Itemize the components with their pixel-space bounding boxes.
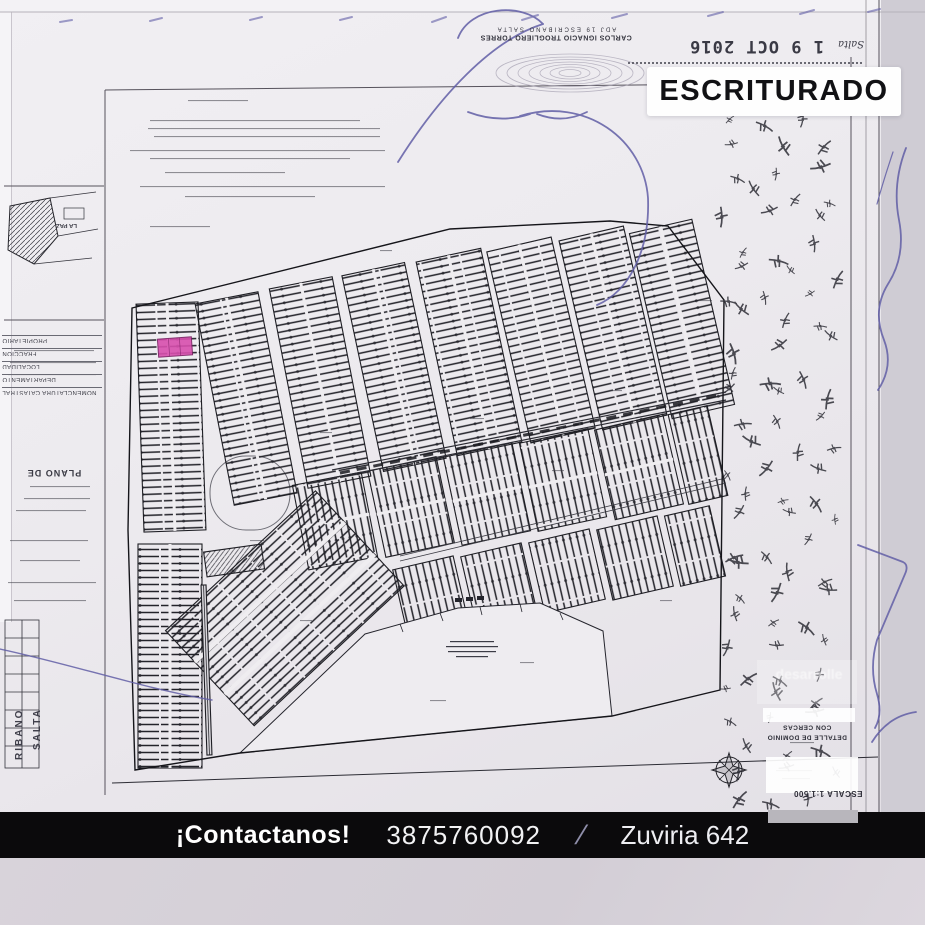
minimap-label: LA PAZ (56, 222, 77, 228)
notary-name-stamp: CARLOS IGNACIO TROGLIERO TORRES ADJ 19 E… (468, 24, 644, 40)
field-label: LOCALIDAD (2, 361, 102, 369)
street-address: Zuviria 642 (621, 820, 750, 851)
title-block-fields: NOMENCLATURA CATASTRAL DEPARTAMENTO LOCA… (2, 330, 102, 400)
status-badge-label: ESCRITURADO (659, 75, 888, 108)
field-label: PROPIETARIO (2, 335, 102, 343)
highlighted-lot (157, 337, 192, 357)
notary-title: ADJ 19 ESCRIBANO SALTA (468, 24, 644, 32)
date-stamp-date: 1 9 OCT 2016 (689, 36, 824, 56)
real-estate-flyer: CARLOS IGNACIO TROGLIERO TORRES ADJ 19 E… (0, 0, 925, 925)
detail-title: DETALLE DE DOMINIO (762, 732, 852, 742)
legend-white-box (763, 708, 855, 722)
date-stamp-place: Salta (838, 38, 864, 49)
field-label: FRACCION (2, 348, 102, 356)
separator-slash: / (575, 820, 587, 851)
contact-cta: ¡Contactanos! (176, 821, 351, 850)
notary-name: CARLOS IGNACIO TROGLIERO TORRES (468, 32, 644, 41)
detail-label: DETALLE DE DOMINIO CON CERCAS (762, 722, 852, 742)
compass-rose-icon (712, 753, 746, 787)
phone-number: 3875760092 (386, 820, 541, 851)
legend-white-box (766, 757, 858, 793)
detail-subtitle: CON CERCAS (762, 722, 852, 732)
field-label: NOMENCLATURA CATASTRAL (2, 387, 102, 395)
watermark-word: desarrolle (754, 666, 864, 682)
location-minimap (4, 186, 104, 320)
plan-title: PLANO DE (14, 468, 94, 478)
date-stamp-dotted-line (628, 62, 862, 64)
field-label: DEPARTAMENTO (2, 374, 102, 382)
date-stamp: Salta 1 9 OCT 2016 (632, 36, 864, 56)
notary-seal-guilloche (496, 54, 644, 92)
watermark-text: desarrolle (754, 666, 864, 682)
edge-vertical-text-2: SALTA (32, 708, 43, 750)
edge-vertical-text-1: RIBANO (14, 709, 25, 760)
scale-label: ESCALA 1:1.500 (792, 789, 864, 798)
status-badge: ESCRITURADO (647, 67, 901, 116)
banner-notch (768, 810, 858, 823)
